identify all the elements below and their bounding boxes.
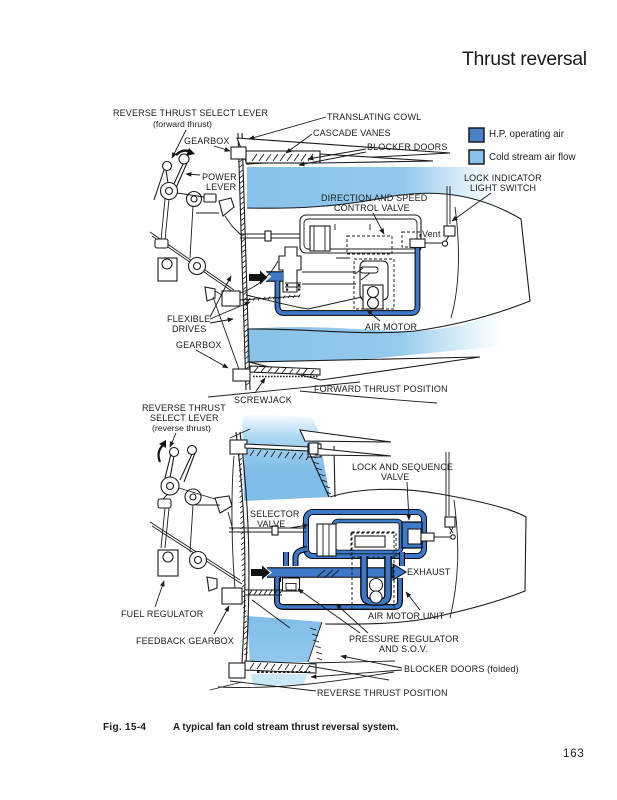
- svg-text:Vent: Vent: [422, 229, 441, 239]
- svg-text:CONTROL VALVE: CONTROL VALVE: [334, 203, 410, 213]
- svg-text:GEARBOX: GEARBOX: [176, 340, 222, 350]
- svg-text:FLEXIBLE: FLEXIBLE: [167, 314, 210, 324]
- svg-text:Thrust reversal: Thrust reversal: [462, 48, 587, 70]
- svg-text:CASCADE VANES: CASCADE VANES: [313, 128, 391, 138]
- svg-text:SELECT LEVER: SELECT LEVER: [150, 413, 219, 423]
- svg-text:POWER: POWER: [202, 172, 237, 182]
- svg-text:LIGHT SWITCH: LIGHT SWITCH: [470, 183, 536, 193]
- svg-text:DRIVES: DRIVES: [172, 324, 206, 334]
- svg-text:Fig. 15-4: Fig. 15-4: [103, 722, 146, 733]
- svg-text:BLOCKER DOORS: BLOCKER DOORS: [367, 142, 447, 152]
- svg-text:VALVE: VALVE: [381, 472, 409, 482]
- svg-text:VALVE: VALVE: [257, 519, 285, 529]
- svg-text:EXHAUST: EXHAUST: [407, 567, 451, 577]
- svg-text:FUEL REGULATOR: FUEL REGULATOR: [121, 609, 204, 619]
- svg-text:PRESSURE REGULATOR: PRESSURE REGULATOR: [349, 634, 459, 644]
- svg-text:REVERSE THRUST SELECT LEVER: REVERSE THRUST SELECT LEVER: [113, 108, 268, 118]
- svg-text:AND S.O.V.: AND S.O.V.: [379, 644, 428, 654]
- svg-text:TRANSLATING COWL: TRANSLATING COWL: [327, 112, 421, 122]
- svg-text:AIR MOTOR UNIT: AIR MOTOR UNIT: [368, 611, 445, 621]
- svg-text:SELECTOR: SELECTOR: [250, 509, 300, 519]
- svg-text:A typical fan cold stream thru: A typical fan cold stream thrust reversa…: [173, 722, 399, 733]
- svg-text:REVERSE THRUST POSITION: REVERSE THRUST POSITION: [317, 688, 448, 698]
- svg-text:SCREWJACK: SCREWJACK: [234, 395, 292, 405]
- svg-text:LEVER: LEVER: [206, 182, 237, 192]
- svg-text:LOCK INDICATOR: LOCK INDICATOR: [464, 173, 542, 183]
- svg-text:LOCK AND SEQUENCE: LOCK AND SEQUENCE: [352, 462, 453, 472]
- svg-text:DIRECTION AND SPEED: DIRECTION AND SPEED: [321, 193, 428, 203]
- svg-text:163: 163: [563, 748, 585, 760]
- svg-text:BLOCKER DOORS (folded): BLOCKER DOORS (folded): [404, 664, 519, 674]
- svg-text:FEEDBACK GEARBOX: FEEDBACK GEARBOX: [136, 636, 234, 646]
- svg-text:(forward thrust): (forward thrust): [153, 119, 212, 129]
- svg-text:FORWARD THRUST POSITION: FORWARD THRUST POSITION: [314, 384, 448, 394]
- svg-text:GEARBOX: GEARBOX: [184, 136, 230, 146]
- svg-text:REVERSE THRUST: REVERSE THRUST: [142, 403, 226, 413]
- svg-text:H.P. operating air: H.P. operating air: [489, 129, 565, 140]
- svg-text:Cold stream air flow: Cold stream air flow: [489, 152, 576, 163]
- svg-text:(reverse thrust): (reverse thrust): [152, 423, 211, 433]
- svg-text:AIR MOTOR: AIR MOTOR: [365, 322, 418, 332]
